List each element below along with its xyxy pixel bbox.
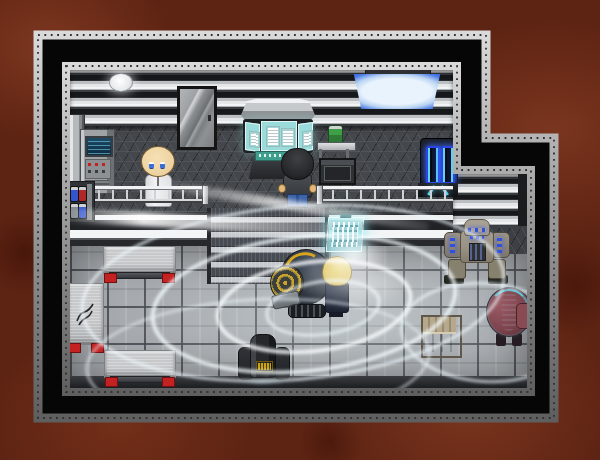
door-handle bbox=[208, 115, 211, 121]
etched-logo bbox=[74, 301, 96, 327]
ceiling-light bbox=[109, 73, 133, 92]
table-surface bbox=[103, 246, 176, 274]
visitor-hair bbox=[322, 256, 352, 286]
supply-shelf[interactable] bbox=[317, 133, 354, 161]
blue-coil-left bbox=[426, 146, 440, 184]
droid-warning-label bbox=[256, 361, 273, 372]
blue-coil-right bbox=[441, 146, 455, 184]
visitor-coat bbox=[325, 282, 349, 313]
table-red-pad bbox=[91, 343, 104, 353]
charging-unit-body bbox=[420, 138, 458, 188]
table-red-pad bbox=[105, 377, 118, 387]
droid-side-pod bbox=[274, 347, 290, 380]
railing-end-post bbox=[316, 185, 323, 205]
scientist-eye bbox=[149, 162, 154, 169]
canister-rack[interactable] bbox=[66, 181, 95, 223]
work-table-bottom bbox=[104, 350, 176, 386]
table-surface bbox=[104, 350, 176, 378]
sliding-door[interactable] bbox=[177, 86, 217, 150]
npc-grey-mech[interactable] bbox=[444, 219, 508, 285]
platform-railing-right bbox=[318, 186, 453, 203]
table-red-pad bbox=[162, 377, 175, 387]
blue-light-panel bbox=[350, 74, 444, 109]
operator-hair bbox=[281, 148, 314, 180]
metal-crate[interactable] bbox=[421, 315, 462, 358]
red-mech-core bbox=[502, 289, 516, 331]
console-screen-center bbox=[261, 121, 297, 151]
npc-service-droid[interactable] bbox=[238, 334, 288, 386]
table-red-pad bbox=[162, 273, 175, 283]
npc-blond-visitor[interactable] bbox=[321, 256, 351, 318]
npc-red-mech[interactable] bbox=[486, 285, 532, 353]
railing-end-post bbox=[202, 185, 209, 205]
rack-post bbox=[87, 184, 92, 220]
wall-console-buttons bbox=[85, 159, 111, 179]
crate-body bbox=[423, 334, 456, 352]
canister bbox=[78, 186, 87, 202]
grey-mech-head bbox=[464, 219, 490, 236]
work-table-top bbox=[103, 246, 176, 282]
grey-mech-grille bbox=[469, 243, 486, 261]
scientist-eye bbox=[160, 162, 165, 169]
table-red-pad bbox=[104, 273, 117, 283]
storage-chest[interactable] bbox=[319, 158, 356, 185]
table-under-shelf bbox=[109, 272, 170, 279]
console-screen-left bbox=[245, 122, 260, 152]
operator-hand bbox=[278, 184, 286, 193]
crate-lid bbox=[423, 317, 456, 334]
work-table-side bbox=[67, 283, 104, 352]
npc-console-operator[interactable] bbox=[280, 148, 313, 210]
game-viewport bbox=[0, 0, 600, 460]
canister bbox=[78, 203, 87, 219]
wall-console-screen bbox=[85, 136, 113, 157]
table-under-shelf bbox=[110, 376, 170, 383]
scientist-head bbox=[141, 146, 175, 177]
